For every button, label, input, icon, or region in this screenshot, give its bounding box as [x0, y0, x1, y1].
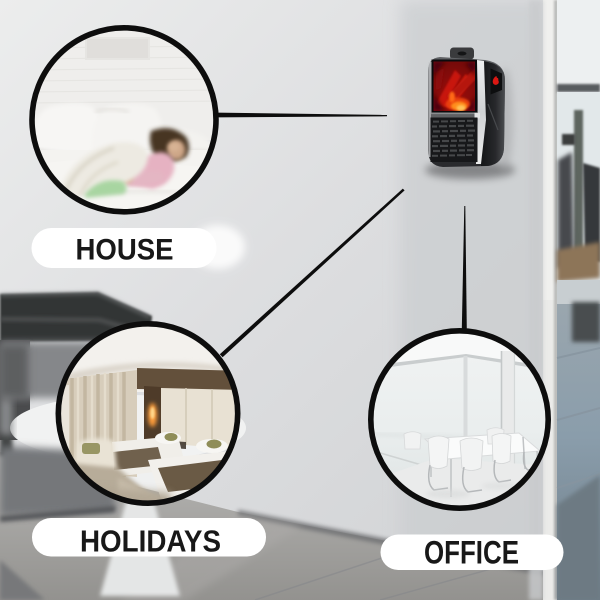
svg-text:OFFICE: OFFICE — [424, 535, 519, 571]
svg-text:HOUSE: HOUSE — [76, 234, 174, 267]
svg-text:HOLIDAYS: HOLIDAYS — [80, 524, 221, 559]
